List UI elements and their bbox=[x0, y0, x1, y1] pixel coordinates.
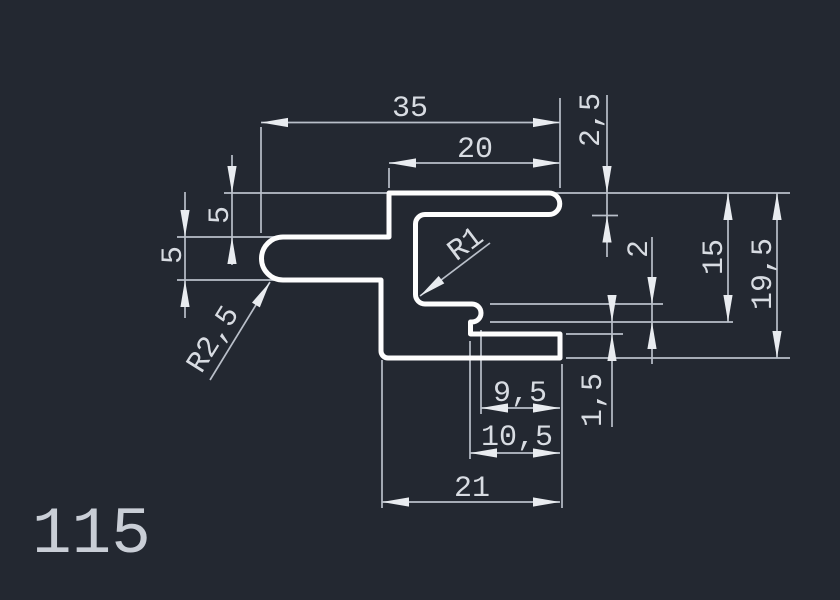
dim-label: 5 bbox=[157, 246, 191, 264]
dim-label: 15 bbox=[698, 239, 732, 275]
dim-label: 20 bbox=[457, 133, 493, 167]
arrowhead bbox=[607, 334, 616, 361]
arrowhead bbox=[252, 282, 270, 307]
arrowhead bbox=[602, 216, 611, 243]
dim-label: 2,5 bbox=[575, 93, 609, 147]
dim-label: 21 bbox=[454, 472, 490, 506]
technical-drawing: 35 20 2,5 5 5 2 1,5 bbox=[0, 0, 840, 600]
dim-bottom-width: 21 bbox=[382, 472, 560, 507]
arrowhead bbox=[382, 497, 409, 506]
dim-top-thickness: 2,5 bbox=[575, 93, 612, 257]
arrowhead bbox=[180, 210, 189, 237]
dim-label: 10,5 bbox=[481, 421, 553, 455]
arrowhead bbox=[533, 497, 560, 506]
arrowhead bbox=[772, 331, 781, 358]
arrowhead bbox=[420, 276, 444, 296]
arrowhead bbox=[227, 166, 236, 193]
arrowhead bbox=[533, 158, 560, 167]
dim-label: 1,5 bbox=[577, 373, 611, 427]
dim-hook-thickness: 2 bbox=[623, 237, 657, 364]
dim-label: 9,5 bbox=[493, 377, 547, 411]
dim-top-offset: 5 bbox=[204, 155, 238, 265]
arrowhead bbox=[227, 237, 236, 264]
profile-outline bbox=[262, 193, 561, 358]
arrowhead bbox=[723, 193, 732, 220]
arrowhead bbox=[723, 295, 732, 322]
dim-label: 35 bbox=[392, 92, 428, 126]
dim-label: 2 bbox=[623, 240, 657, 258]
dim-label: 5 bbox=[204, 206, 238, 224]
arrowhead bbox=[533, 118, 560, 127]
dim-total-width: 35 bbox=[261, 92, 560, 127]
dim-label: 19,5 bbox=[747, 238, 781, 310]
arrowhead bbox=[389, 158, 416, 167]
dim-total-height: 19,5 bbox=[747, 193, 782, 358]
dim-hook-width: 10,5 bbox=[470, 421, 560, 458]
dim-label: R2,5 bbox=[181, 301, 248, 380]
dim-slot-width: 9,5 bbox=[481, 377, 560, 413]
cad-canvas: 35 20 2,5 5 5 2 1,5 bbox=[0, 0, 840, 600]
arrowhead bbox=[261, 118, 288, 127]
arrowhead bbox=[647, 322, 656, 349]
arrowhead bbox=[180, 280, 189, 307]
dim-inner-radius: R1 bbox=[420, 221, 491, 296]
arrowhead bbox=[602, 166, 611, 193]
profile-number: 115 bbox=[32, 497, 151, 572]
dim-hook-depth: 15 bbox=[698, 193, 733, 322]
dim-slot-gap: 1,5 bbox=[577, 295, 617, 427]
dim-label: R1 bbox=[442, 221, 491, 270]
dim-arm-thickness: 5 bbox=[157, 192, 191, 318]
arrowhead bbox=[772, 193, 781, 220]
arrowhead bbox=[607, 295, 616, 322]
arrowhead bbox=[647, 277, 656, 304]
dim-arm-radius: R2,5 bbox=[181, 282, 270, 380]
dim-top-width: 20 bbox=[389, 133, 560, 168]
